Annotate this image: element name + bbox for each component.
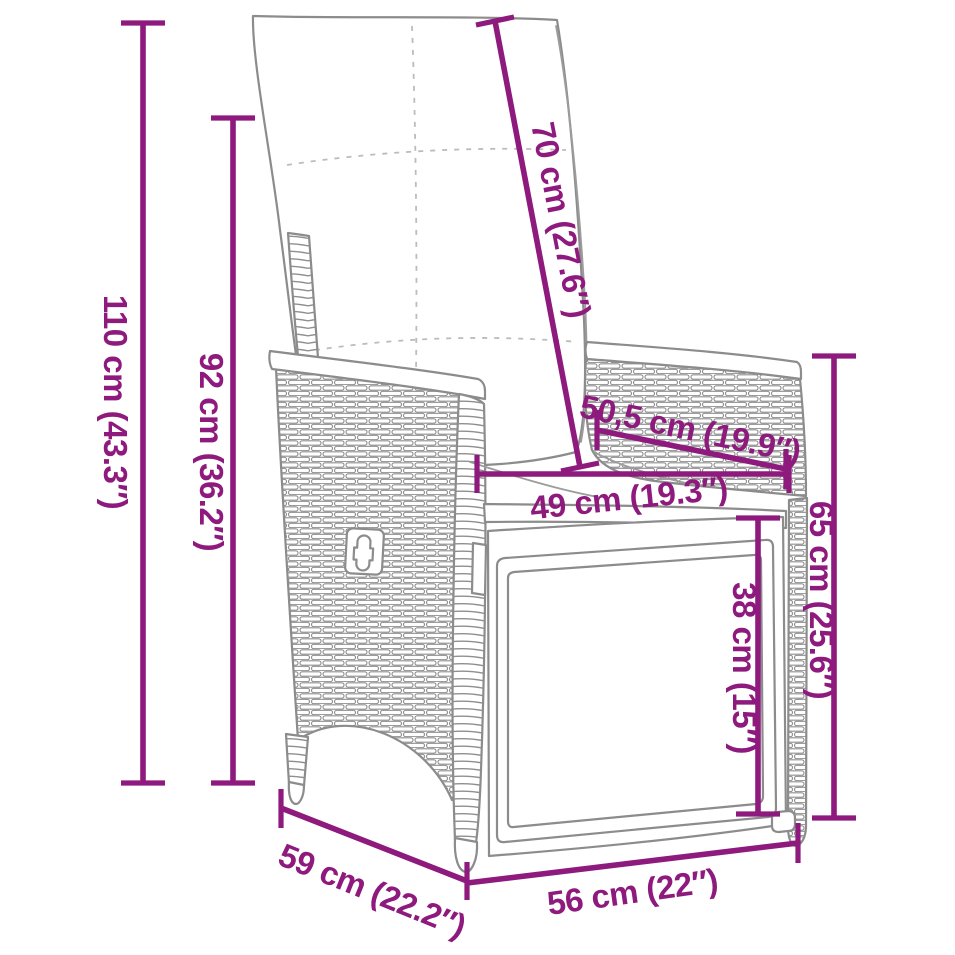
dimension-label: 59 cm (22.2″): [273, 836, 471, 945]
front-left-frame: [453, 394, 486, 843]
dimension-back-height: 92 cm (36.2″): [193, 118, 255, 783]
dimension-label: 110 cm (43.3″): [97, 295, 134, 509]
dimension-label: 38 cm (15″): [726, 582, 763, 754]
dimension-label: 92 cm (36.2″): [193, 353, 230, 551]
dimension-seat-depth: 59 cm (22.2″): [273, 789, 471, 945]
back-left-foot: [289, 782, 304, 804]
dimension-total-height: 110 cm (43.3″): [97, 23, 165, 783]
recline-latch: [345, 528, 384, 575]
dimension-label: 65 cm (25.6″): [803, 501, 840, 699]
back-left-leg: [286, 734, 308, 786]
diagram-canvas: 110 cm (43.3″) 92 cm (36.2″) 70 cm (27.6…: [0, 0, 955, 955]
footrest-cushion-inner: [508, 555, 763, 827]
hinge-bracket: [472, 543, 486, 595]
dimension-armrest-height: 65 cm (25.6″): [803, 356, 856, 818]
side-panel: [276, 368, 466, 800]
dimension-diagram: 110 cm (43.3″) 92 cm (36.2″) 70 cm (27.6…: [0, 0, 955, 955]
